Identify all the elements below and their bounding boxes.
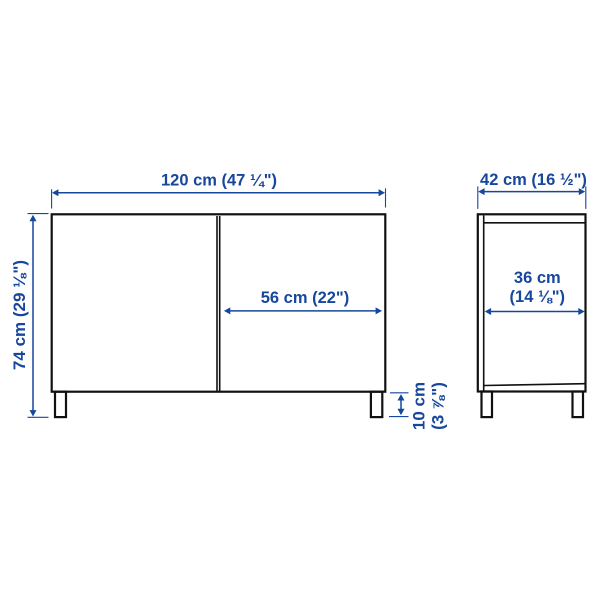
- svg-text:36 cm: 36 cm: [514, 269, 561, 287]
- svg-text:42 cm (16 ½"): 42 cm (16 ½"): [480, 171, 587, 189]
- svg-text:(14 ⅛"): (14 ⅛"): [510, 288, 566, 306]
- svg-text:(3 ⅞"): (3 ⅞"): [429, 382, 448, 430]
- svg-text:74 cm (29 ⅛"): 74 cm (29 ⅛"): [10, 260, 29, 370]
- svg-text:120 cm (47 ¼"): 120 cm (47 ¼"): [161, 172, 277, 190]
- svg-text:56 cm (22"): 56 cm (22"): [261, 289, 350, 307]
- svg-text:10 cm: 10 cm: [410, 382, 429, 430]
